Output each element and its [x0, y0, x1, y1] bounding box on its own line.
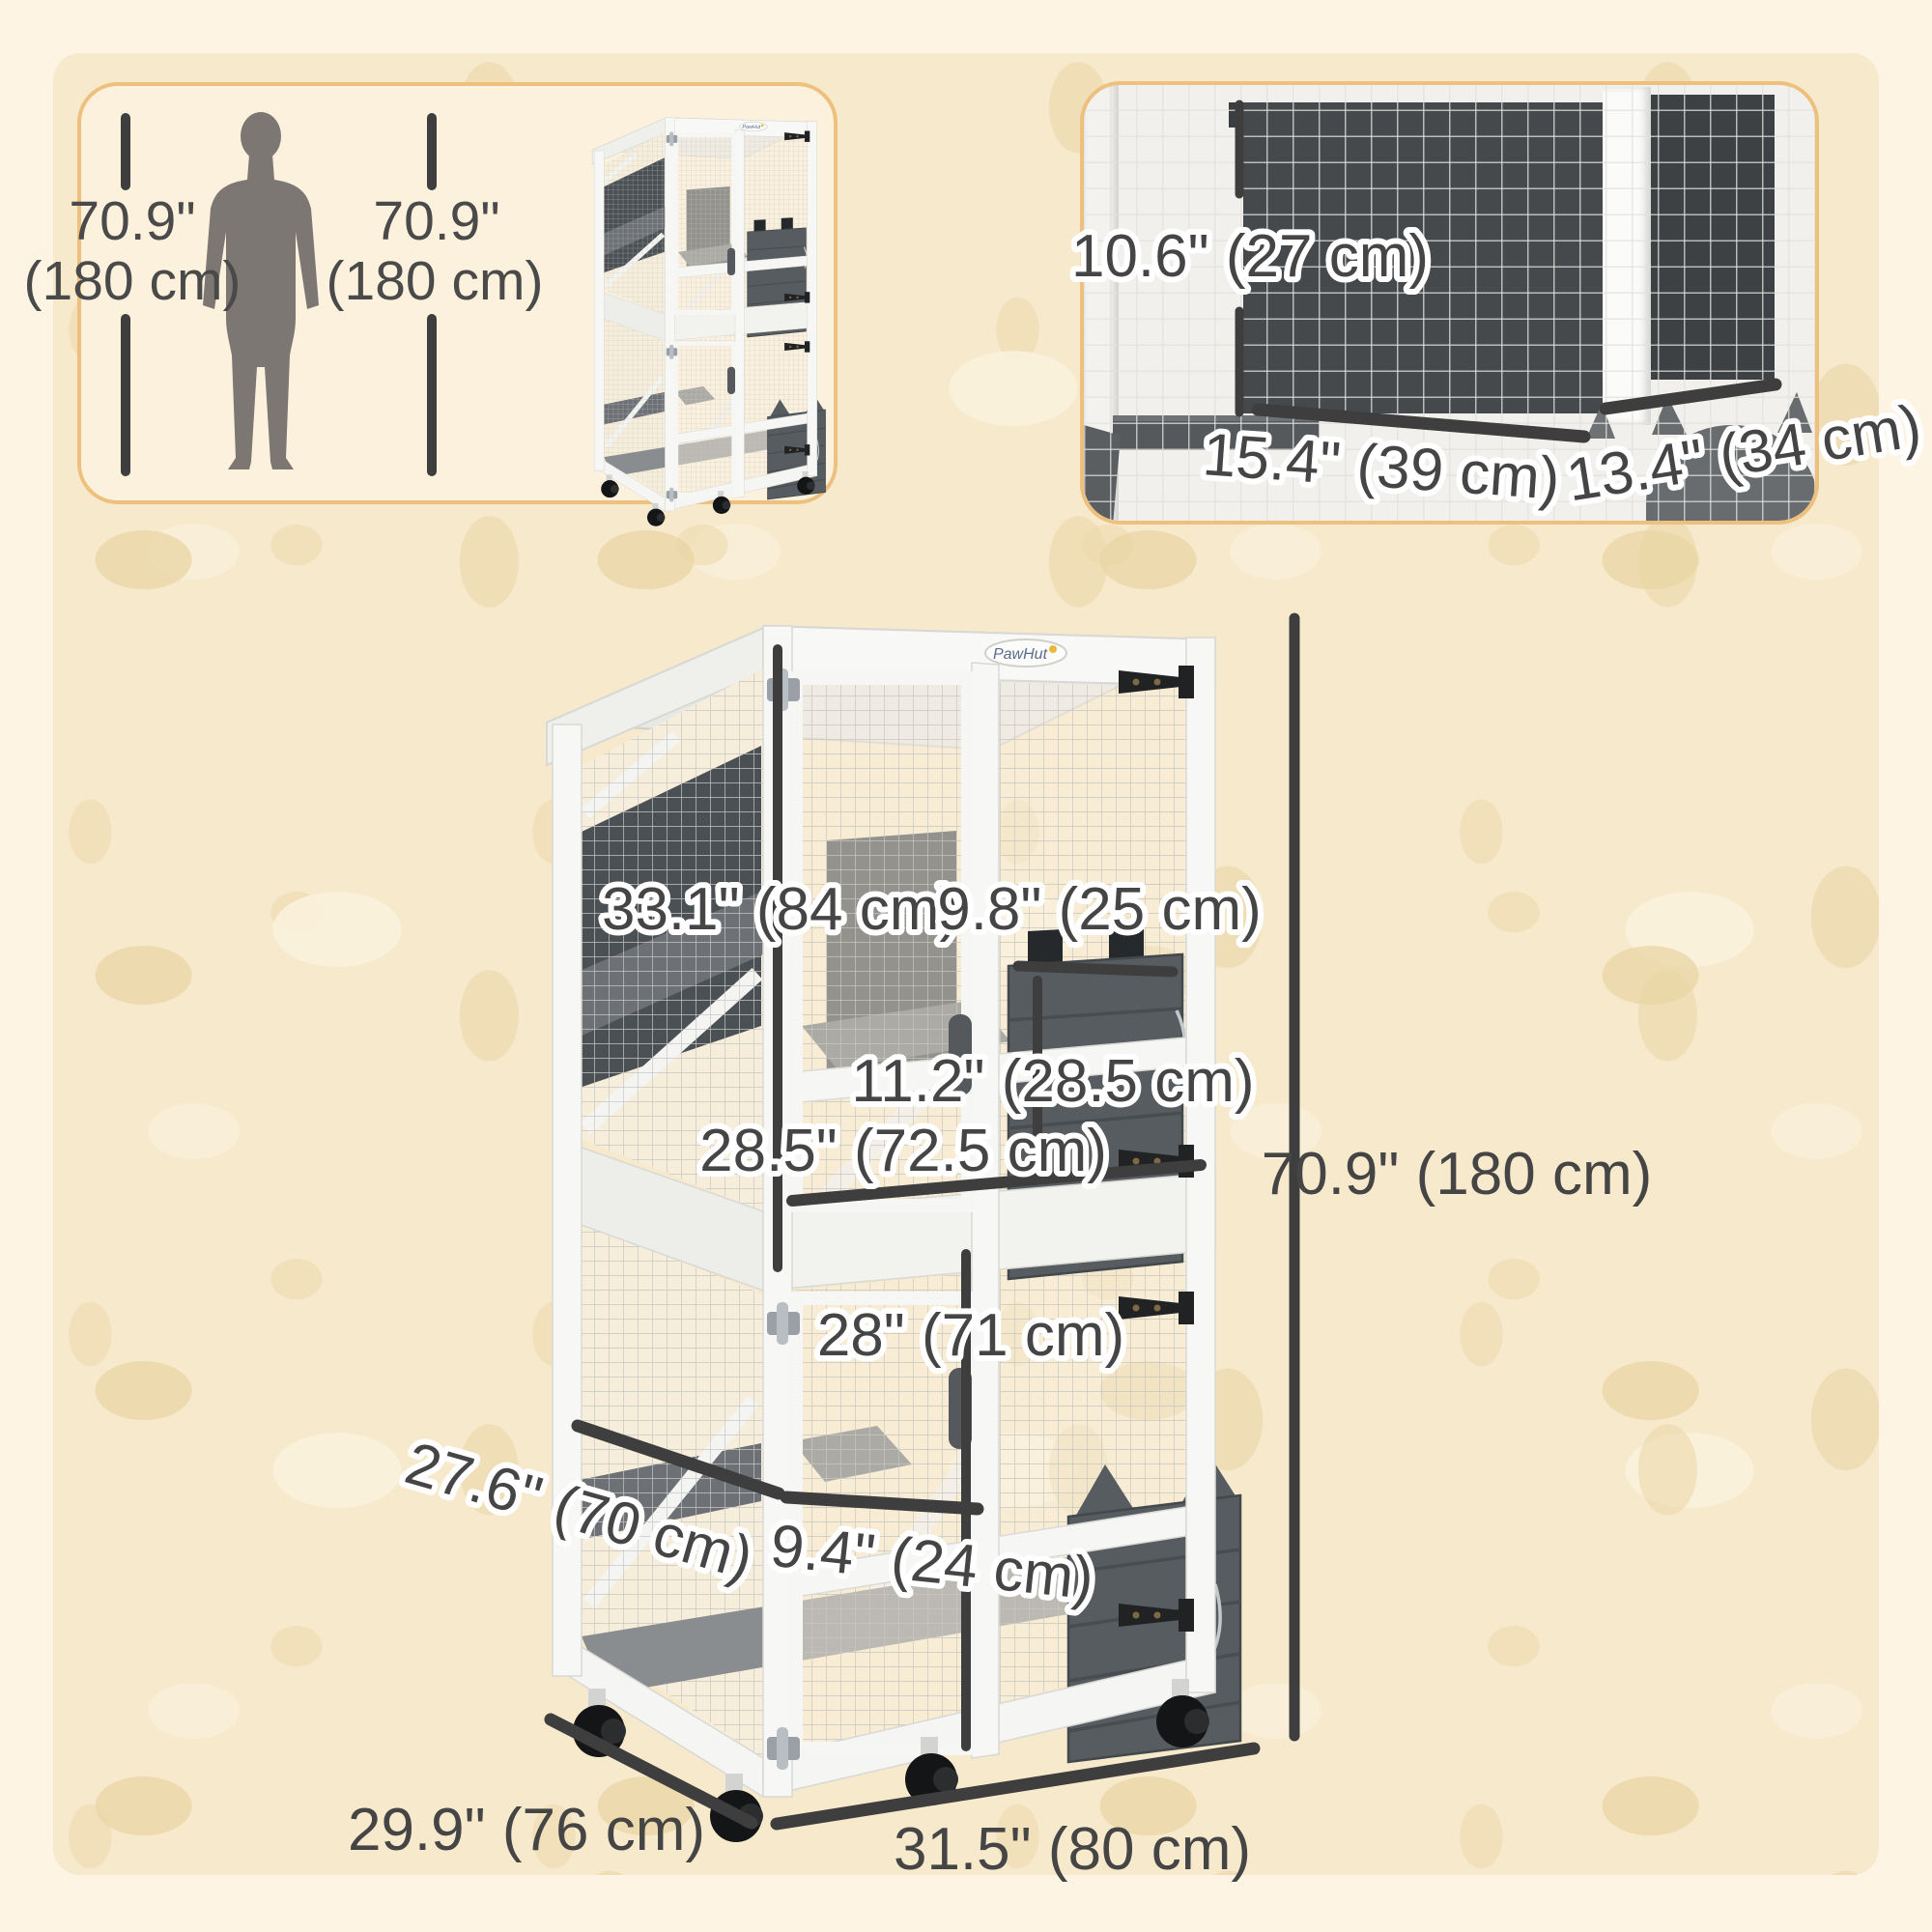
- dim-label-upper-height: 33.1" (84 cm): [602, 876, 959, 943]
- dim-bar-upper-door-width: [1018, 966, 1173, 972]
- right-height-label-cm: (180 cm): [327, 250, 544, 312]
- dim-label-opening-height: 10.6" (27 cm): [1071, 223, 1429, 290]
- brand-text: PawHut: [993, 646, 1048, 663]
- right-height-label-in: 70.9": [373, 190, 499, 252]
- dim-bar-right-opening: [1605, 384, 1776, 409]
- dim-label-base-width: 31.5" (80 cm): [894, 1816, 1251, 1883]
- left-height-label-cm: (180 cm): [24, 250, 241, 312]
- mini-catio-drawing: [592, 118, 825, 526]
- left-height-label-in: 70.9": [69, 190, 195, 252]
- dim-label-upper-front-width: 28.5" (72.5 cm): [699, 1118, 1107, 1184]
- catio-drawing: PawHut: [547, 626, 1240, 1842]
- dim-label-base-depth: 29.9" (76 cm): [348, 1797, 705, 1863]
- dim-label-lower-height: 28" (71 cm): [817, 1302, 1124, 1369]
- brand-logo: PawHut: [985, 639, 1066, 667]
- diagram-canvas: PawHut 70.9" (180 cm) 70.9" (180 cm) 10.…: [0, 0, 1932, 1932]
- dim-label-cat-door-height: 11.2" (28.5 cm): [851, 1048, 1254, 1115]
- dim-label-upper-door-width: 9.8" (25 cm): [937, 876, 1262, 943]
- dim-label-overall-height: 70.9" (180 cm): [1262, 1141, 1653, 1207]
